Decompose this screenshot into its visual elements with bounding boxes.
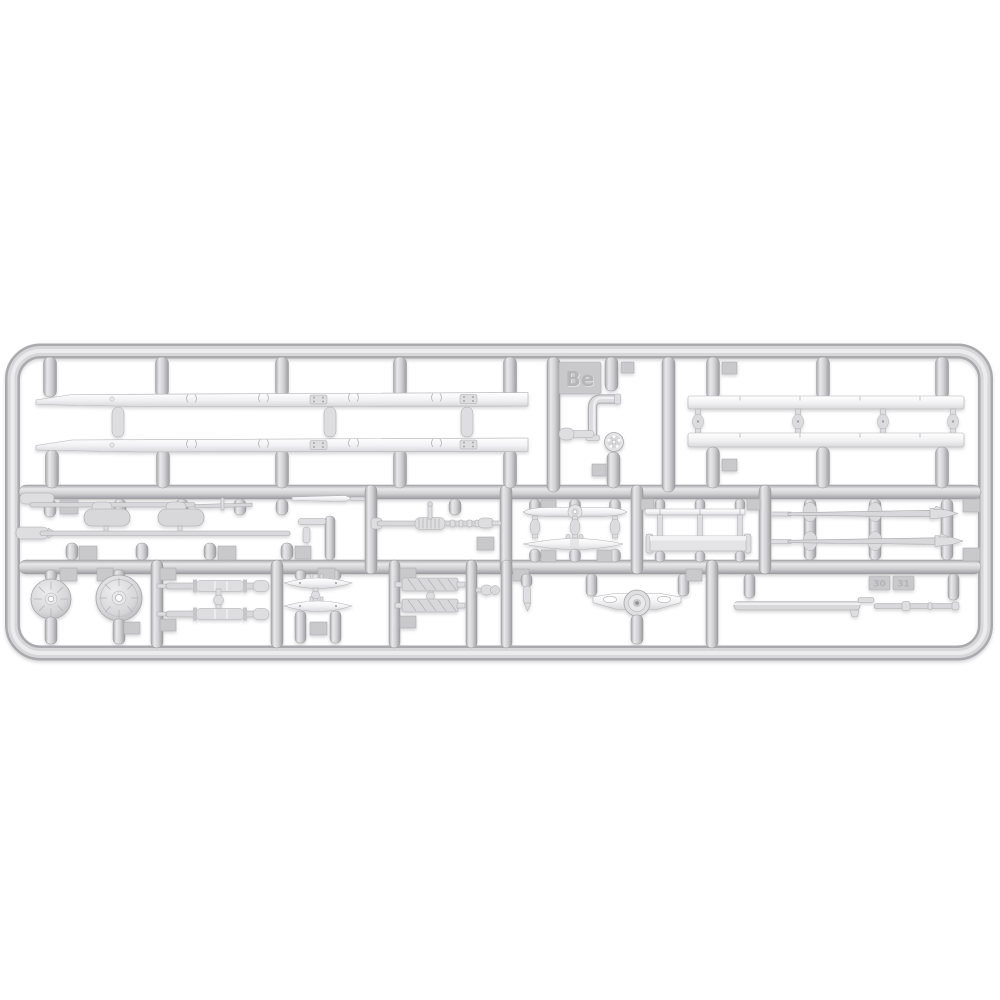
steering-rod-lower bbox=[771, 534, 963, 547]
compartment-axle-shafts bbox=[157, 568, 269, 631]
steering-rod-upper bbox=[771, 506, 958, 519]
part-number-tab bbox=[592, 464, 606, 476]
engine-mount-bracket bbox=[593, 590, 681, 616]
pulley-wheel bbox=[605, 433, 624, 452]
part-number-tab bbox=[621, 362, 634, 373]
compartment-cross-bars bbox=[395, 568, 465, 628]
part-number-tab-31: 31 bbox=[893, 576, 914, 590]
sprue-photo: Be Be bbox=[0, 0, 1000, 1000]
rail-links bbox=[112, 407, 473, 437]
compartment-strip-box bbox=[641, 499, 760, 562]
sprue-letter-tab: Be Be bbox=[559, 362, 601, 394]
link-pods bbox=[530, 516, 620, 538]
strip-lower bbox=[688, 433, 964, 447]
strip-links bbox=[693, 409, 959, 434]
compartment-mount-bracket bbox=[513, 569, 702, 644]
compartment-side-strips bbox=[688, 357, 964, 488]
chassis-rail-top bbox=[36, 393, 528, 407]
strip-upper bbox=[688, 396, 964, 409]
ribbed-bar-lower bbox=[395, 599, 465, 612]
part-number-tab bbox=[218, 546, 236, 560]
exhaust-shaft bbox=[371, 502, 501, 530]
compartment-valve bbox=[476, 585, 500, 595]
tie-rod-lower bbox=[16, 527, 290, 539]
svg-text:30: 30 bbox=[873, 580, 886, 590]
part-number-tab-30: 30 bbox=[869, 576, 890, 590]
compartment-exhaust-shaft bbox=[371, 499, 501, 550]
pin-part bbox=[521, 574, 532, 611]
hub-disc-large bbox=[96, 575, 142, 621]
compartment-chassis-rails bbox=[36, 357, 528, 488]
compartment-steering-rods bbox=[771, 499, 980, 561]
svg-text:31: 31 bbox=[897, 580, 910, 590]
flat-strip bbox=[645, 509, 745, 515]
photo-canvas: Be Be bbox=[0, 0, 1000, 1000]
axle-link bbox=[214, 589, 224, 611]
part-number-tab bbox=[79, 546, 97, 560]
axle-shaft-upper bbox=[157, 580, 269, 593]
hub-disc-small bbox=[31, 579, 71, 619]
compartment-fan-spring bbox=[523, 499, 627, 562]
part-number-tab bbox=[477, 537, 494, 550]
axle-shaft-lower bbox=[157, 608, 269, 621]
compartment-drive-shaft: 30 31 bbox=[734, 574, 959, 617]
drive-shaft bbox=[734, 598, 959, 617]
ribbed-bar-upper bbox=[395, 578, 465, 591]
runner-stub bbox=[607, 452, 620, 488]
compartment-leaf-springs bbox=[284, 568, 352, 643]
part-number-tab bbox=[295, 546, 311, 559]
compartment-hub-discs bbox=[31, 568, 142, 644]
runner-stub bbox=[605, 357, 618, 391]
compartment-rods-mufflers bbox=[16, 493, 365, 560]
sprue-letter-text: Be bbox=[566, 367, 595, 391]
cross-box bbox=[646, 534, 751, 553]
chassis-rail-bottom bbox=[36, 438, 528, 452]
compartment-letter-be: Be Be bbox=[559, 357, 634, 488]
